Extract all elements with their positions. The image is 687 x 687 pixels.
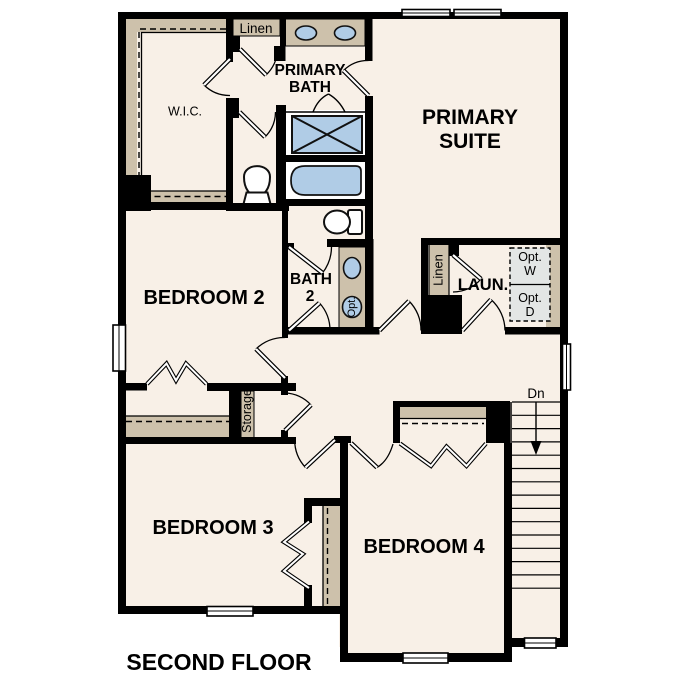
svg-text:PRIMARY: PRIMARY [422, 106, 518, 129]
svg-text:D: D [525, 305, 534, 319]
svg-text:BATH: BATH [289, 79, 331, 96]
svg-text:2: 2 [306, 288, 315, 305]
svg-text:Opt.: Opt. [346, 297, 358, 318]
svg-text:BEDROOM 3: BEDROOM 3 [152, 517, 273, 539]
svg-text:Dn: Dn [527, 386, 544, 401]
svg-text:Opt.: Opt. [518, 291, 542, 305]
svg-text:W: W [524, 264, 536, 278]
svg-text:BATH: BATH [290, 271, 332, 288]
svg-text:Opt.: Opt. [518, 250, 542, 264]
svg-text:LAUN.: LAUN. [458, 276, 508, 294]
svg-text:Storage: Storage [240, 389, 254, 433]
svg-text:BEDROOM 2: BEDROOM 2 [143, 287, 264, 309]
svg-text:BEDROOM 4: BEDROOM 4 [363, 536, 485, 558]
svg-text:SECOND FLOOR: SECOND FLOOR [126, 649, 312, 675]
svg-text:W.I.C.: W.I.C. [168, 105, 202, 119]
svg-text:Linen: Linen [239, 21, 272, 36]
svg-text:PRIMARY: PRIMARY [275, 62, 347, 79]
svg-text:Linen: Linen [430, 254, 445, 286]
svg-text:SUITE: SUITE [439, 130, 501, 153]
